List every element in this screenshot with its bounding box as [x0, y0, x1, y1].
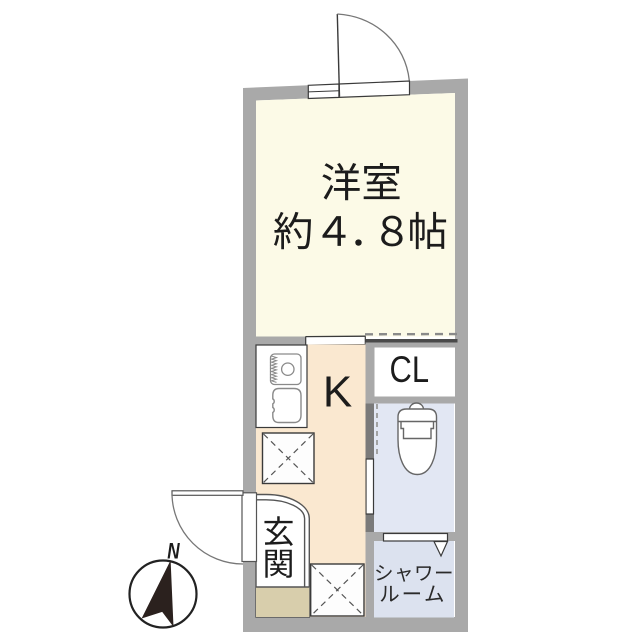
svg-text:N: N — [167, 540, 180, 565]
svg-text:K: K — [323, 367, 352, 416]
svg-text:CL: CL — [390, 349, 430, 390]
